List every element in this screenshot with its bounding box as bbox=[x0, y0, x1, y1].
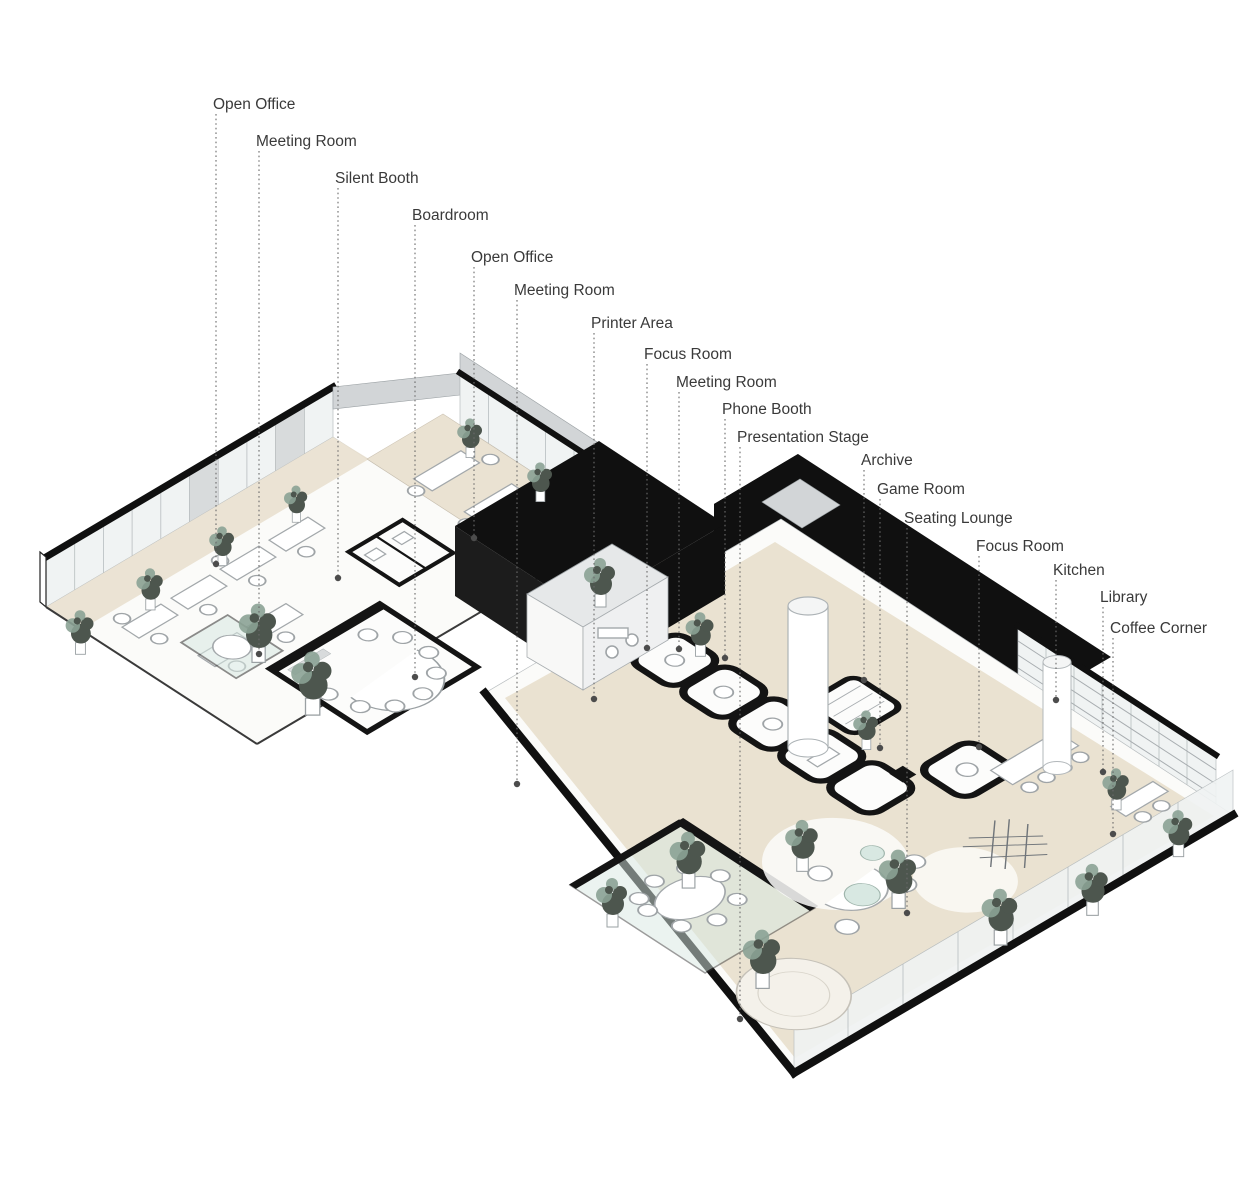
room-label: Presentation Stage bbox=[737, 429, 869, 446]
leader-dot bbox=[1053, 697, 1059, 703]
room-label: Open Office bbox=[471, 249, 553, 266]
leader-dot bbox=[861, 677, 867, 683]
room-label: Boardroom bbox=[412, 207, 489, 224]
leader-dot bbox=[1110, 831, 1116, 837]
room-label: Meeting Room bbox=[676, 374, 777, 391]
room-label: Printer Area bbox=[591, 315, 673, 332]
leader-dot bbox=[737, 1016, 743, 1022]
leader-dot bbox=[213, 561, 219, 567]
leader-dot bbox=[722, 655, 728, 661]
room-label: Meeting Room bbox=[514, 282, 615, 299]
page: Open OfficeMeeting RoomSilent BoothBoard… bbox=[0, 0, 1256, 1200]
leader-dot bbox=[514, 781, 520, 787]
room-label: Game Room bbox=[877, 481, 965, 498]
leader-dot bbox=[904, 910, 910, 916]
leader-dot bbox=[1100, 769, 1106, 775]
room-label: Library bbox=[1100, 589, 1148, 606]
leader-dot bbox=[976, 744, 982, 750]
axonometric-floor-plan: Open OfficeMeeting RoomSilent BoothBoard… bbox=[0, 0, 1256, 1200]
leader-dot bbox=[471, 535, 477, 541]
leader-dot bbox=[644, 645, 650, 651]
leader-dot bbox=[335, 575, 341, 581]
room-label: Archive bbox=[861, 452, 913, 469]
room-label: Phone Booth bbox=[722, 401, 812, 418]
room-label: Coffee Corner bbox=[1110, 620, 1207, 637]
room-label: Focus Room bbox=[644, 346, 732, 363]
room-label: Kitchen bbox=[1053, 562, 1105, 579]
leader-dot bbox=[877, 745, 883, 751]
leader-dot bbox=[591, 696, 597, 702]
room-label: Open Office bbox=[213, 96, 295, 113]
room-label: Meeting Room bbox=[256, 133, 357, 150]
leader-dot bbox=[412, 674, 418, 680]
room-label: Focus Room bbox=[976, 538, 1064, 555]
room-label: Silent Booth bbox=[335, 170, 419, 187]
leader-dot bbox=[676, 646, 682, 652]
roof-step bbox=[333, 373, 460, 409]
room-label: Seating Lounge bbox=[904, 510, 1013, 527]
leader-dot bbox=[256, 651, 262, 657]
